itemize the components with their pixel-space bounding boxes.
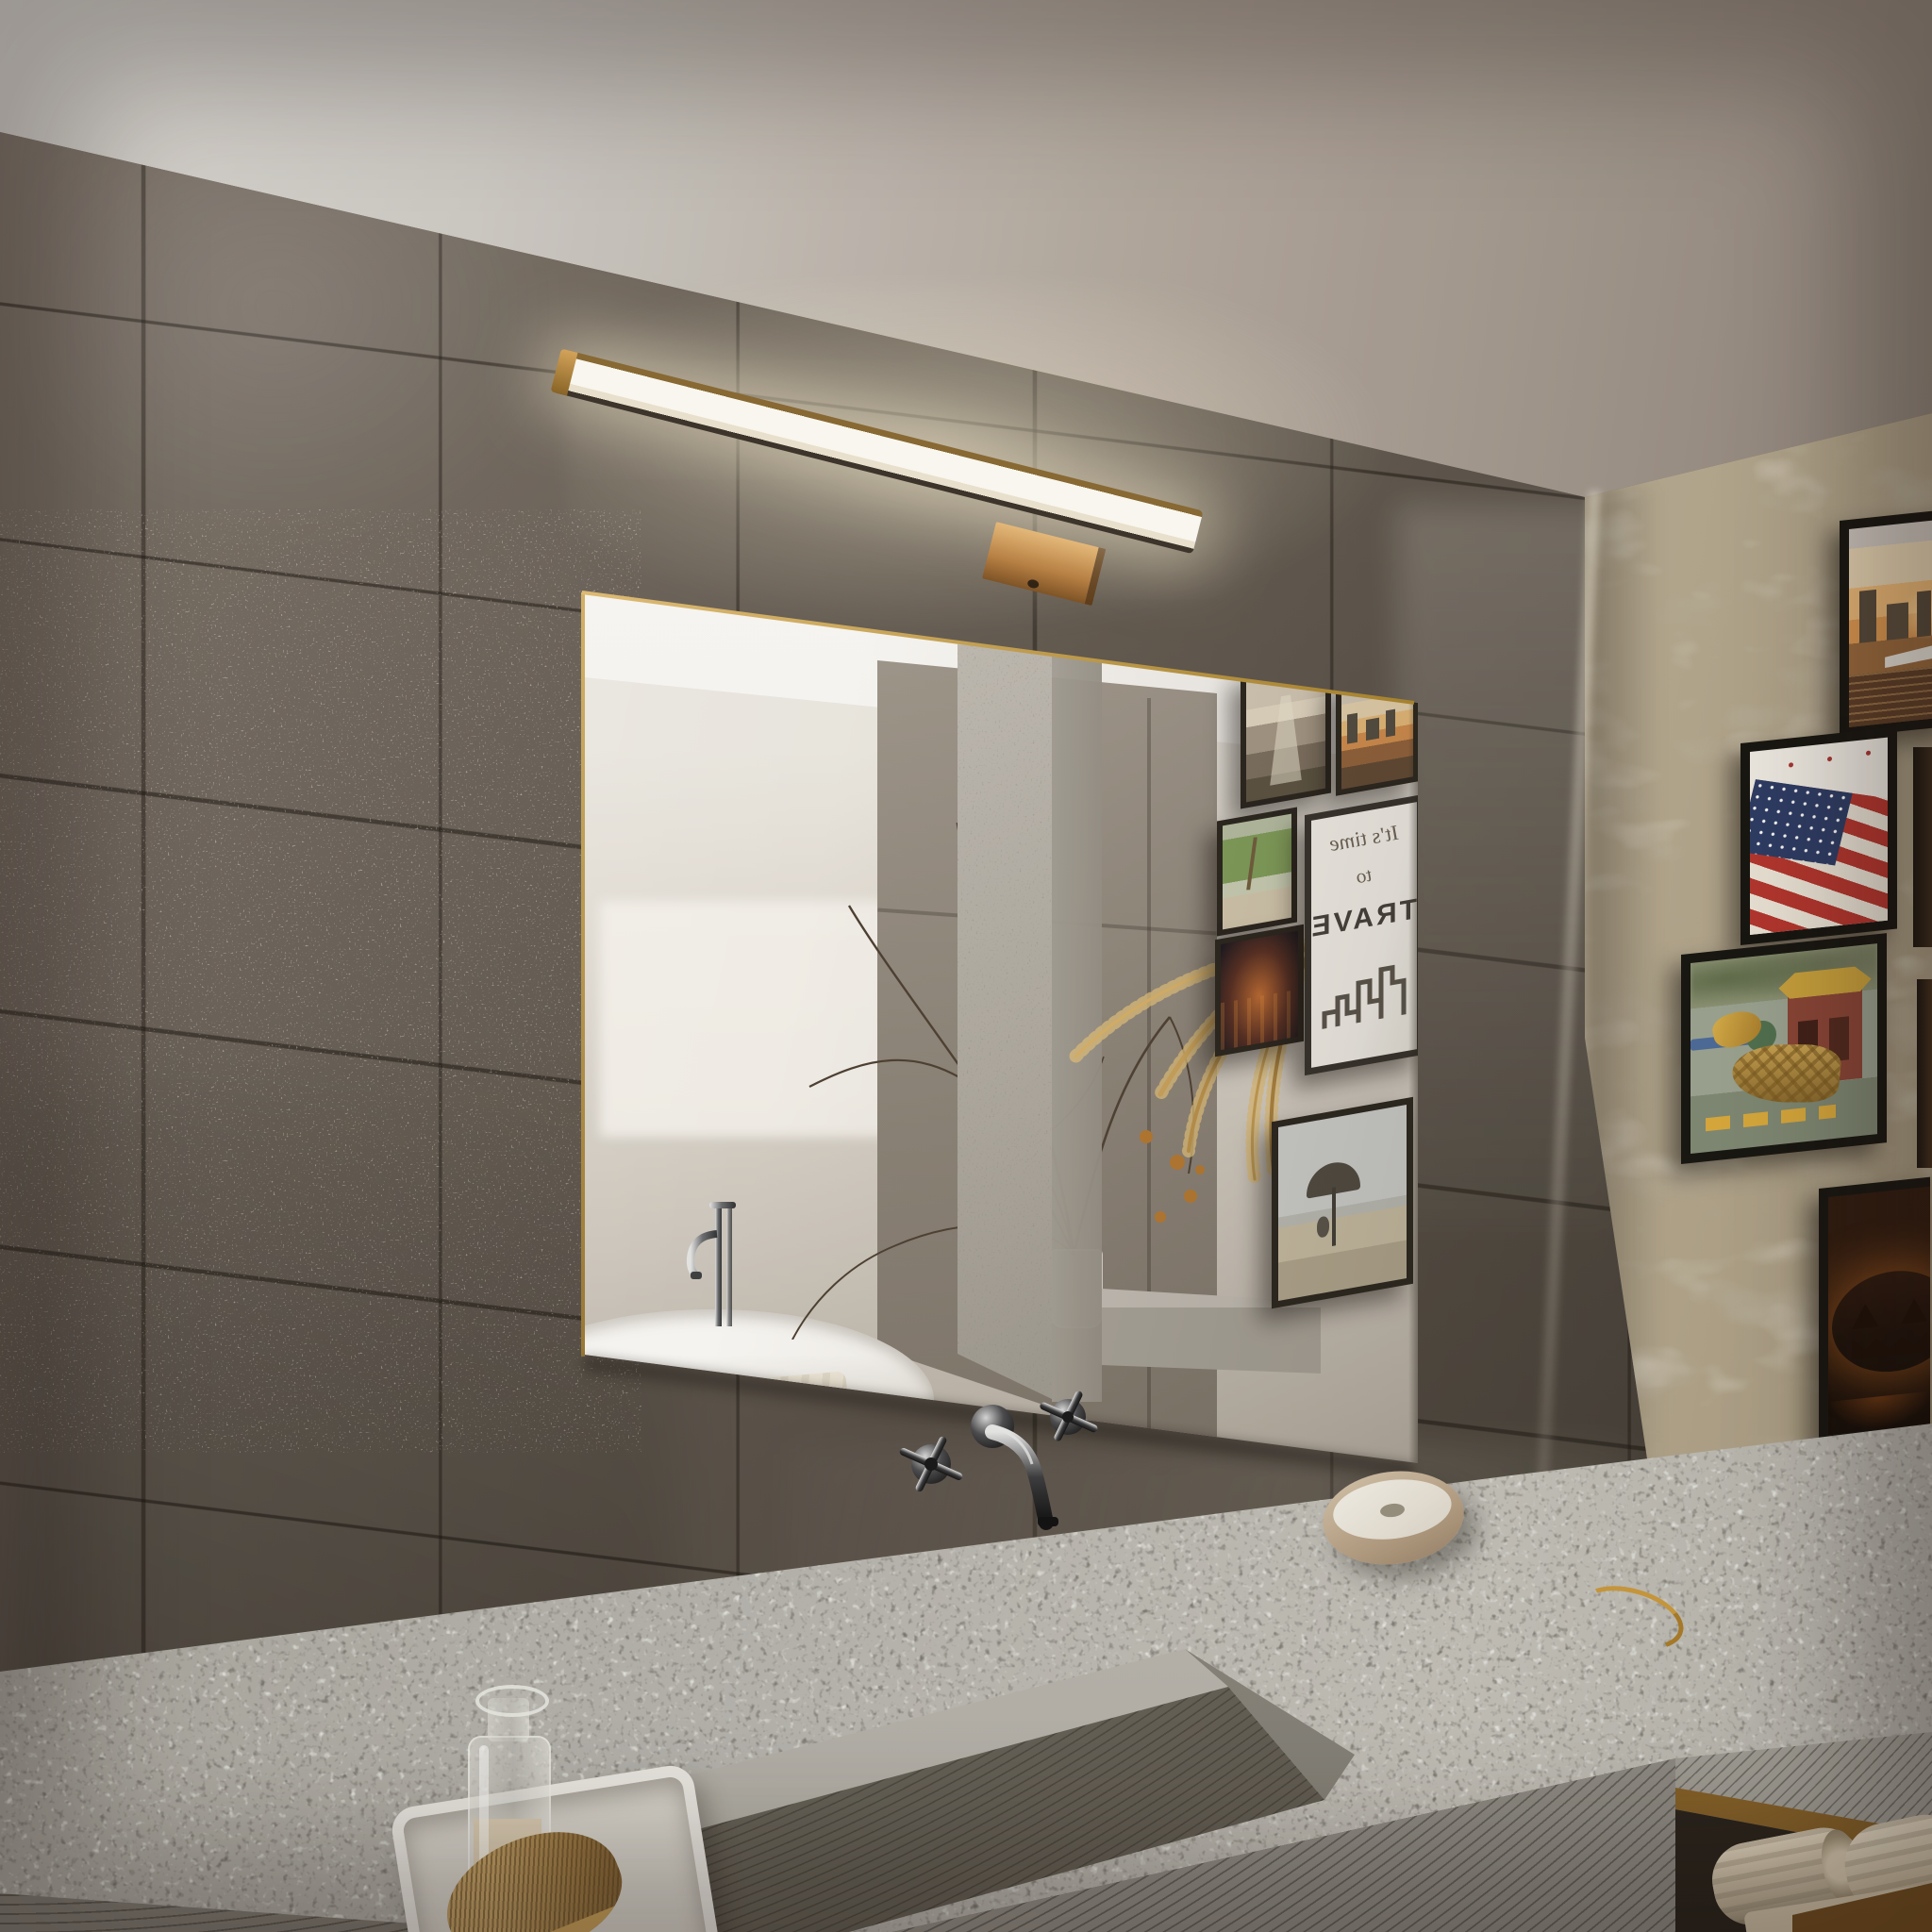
vignette <box>0 0 1932 1932</box>
bathroom-scene: It's time to TRAVEL <box>0 0 1932 1932</box>
